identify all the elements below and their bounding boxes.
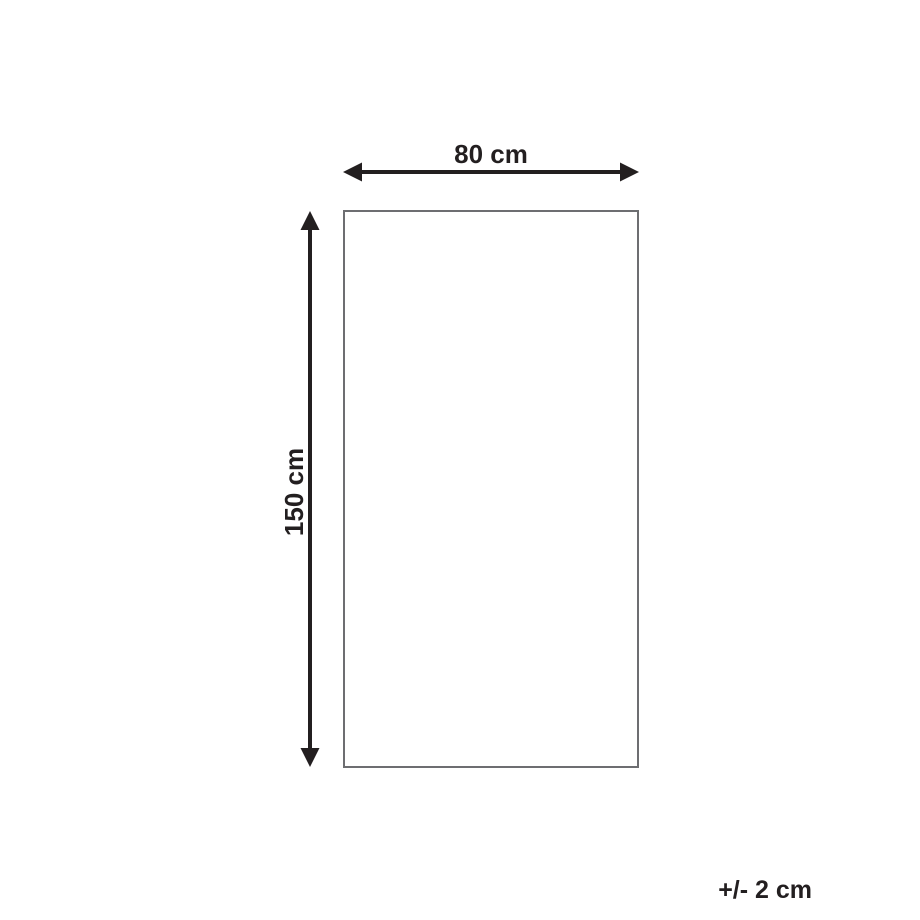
dimension-diagram: 80 cm 150 cm +/- 2 cm (0, 0, 920, 920)
product-outline-rectangle (343, 210, 639, 768)
tolerance-label: +/- 2 cm (718, 876, 812, 904)
height-arrow-top-head-icon (301, 211, 320, 230)
height-arrow-bottom-head-icon (301, 748, 320, 767)
width-dimension-label: 80 cm (343, 140, 639, 168)
height-dimension-label: 150 cm (280, 432, 308, 552)
